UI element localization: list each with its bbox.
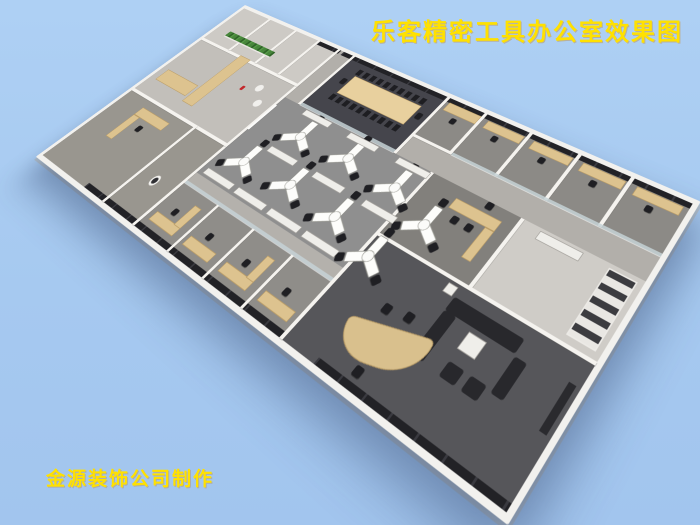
floor-plate	[43, 8, 693, 512]
building-slab	[36, 5, 700, 525]
watermark-text: 金源装饰公司制作	[46, 464, 214, 491]
title-text: 乐客精密工具办公室效果图	[371, 12, 697, 47]
office-rendering-scene: 乐客精密工具办公室效果图 金源装饰公司制作	[0, 0, 700, 525]
